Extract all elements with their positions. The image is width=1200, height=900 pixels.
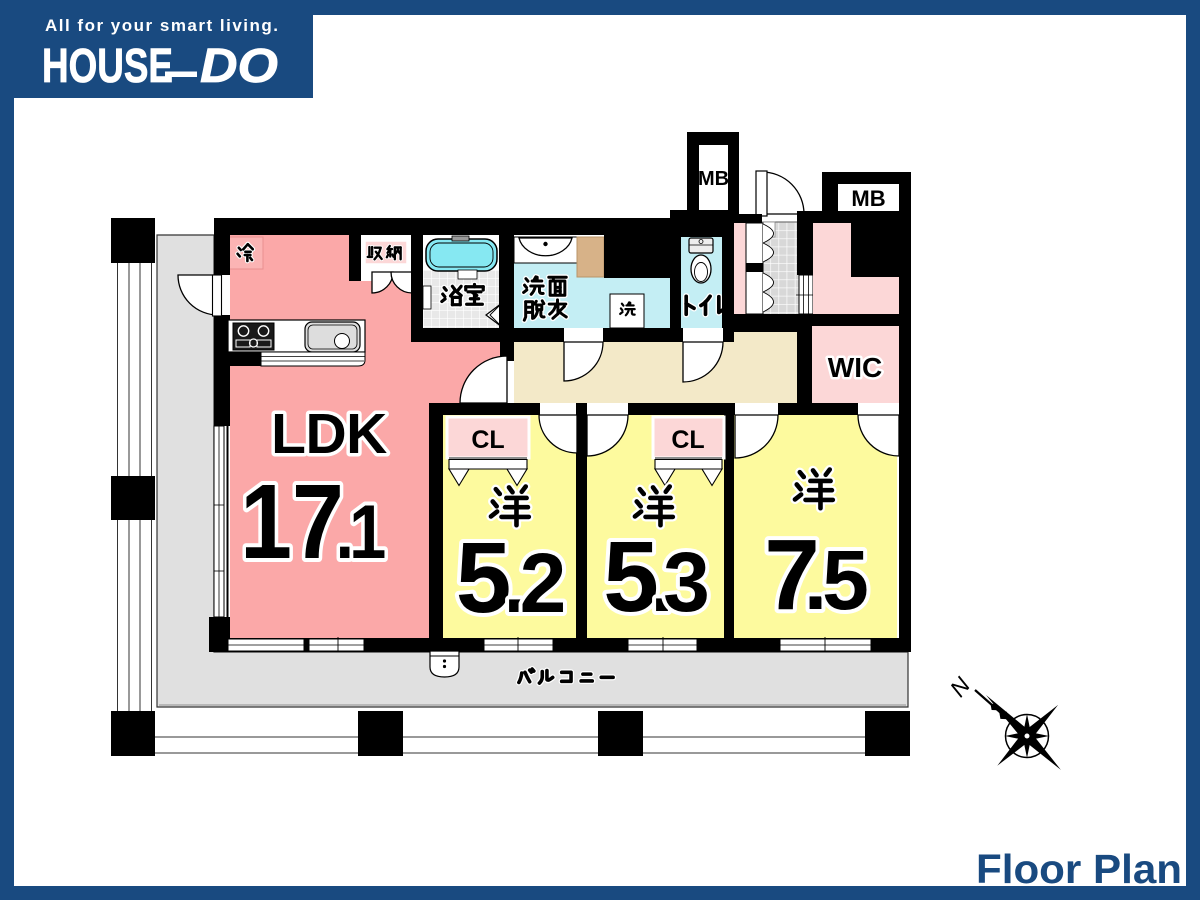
svg-text:WIC: WIC xyxy=(828,352,882,383)
svg-text:Floor Plan: Floor Plan xyxy=(976,846,1182,892)
svg-text:MB: MB xyxy=(851,186,885,211)
svg-text:All for your smart living.: All for your smart living. xyxy=(45,16,278,35)
svg-text:CL: CL xyxy=(471,426,504,454)
svg-text:MB: MB xyxy=(698,168,729,190)
svg-text:HOUSE: HOUSE xyxy=(42,40,173,93)
svg-text:DO: DO xyxy=(200,40,278,93)
svg-text:5.3: 5.3 xyxy=(603,521,710,633)
svg-text:CL: CL xyxy=(671,426,704,454)
svg-text:LDK: LDK xyxy=(271,402,387,466)
svg-text:5.2: 5.2 xyxy=(456,522,567,634)
svg-text:7.5: 7.5 xyxy=(764,519,869,631)
